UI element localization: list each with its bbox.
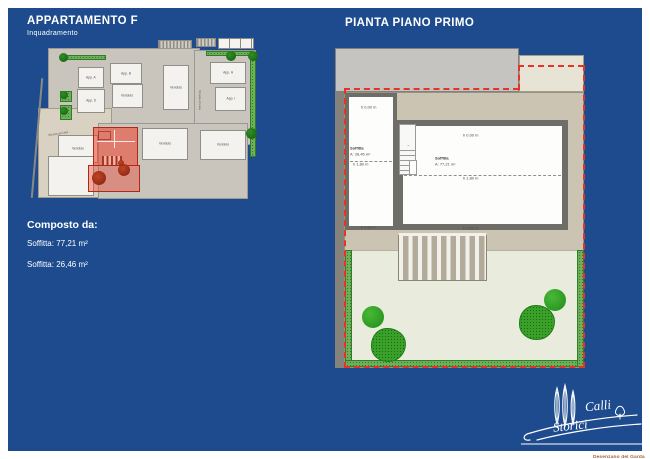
property-boundary — [583, 65, 585, 368]
apartment-d-label: App. D — [86, 99, 96, 102]
tree-icon — [544, 289, 566, 311]
sold-label: Venduto — [72, 147, 84, 150]
composto-heading: Composto da: — [27, 219, 98, 231]
tree-icon — [226, 51, 236, 61]
site-plan: App. A App. B Venduto App. D Venduto App… — [30, 38, 270, 201]
tree-icon — [248, 51, 258, 61]
large-room-area: A: 77,21 m² — [435, 154, 466, 172]
first-floor-plan: h 0,00 m Soffitta A: 26,46 m² h 1,80 m h… — [335, 48, 589, 372]
interior-wall — [114, 130, 115, 148]
tree-icon — [246, 128, 257, 139]
sold-label: Venduto — [170, 86, 182, 89]
tree-icon — [118, 160, 124, 166]
staircase — [399, 124, 416, 175]
sold-label: Venduto — [159, 142, 171, 145]
street-label-right: Strada privata — [192, 90, 210, 130]
height-label: h 0,00 m — [361, 97, 384, 115]
height-mid-label: h 1,80 m — [353, 163, 368, 167]
height-label: h 0,00 m — [463, 218, 486, 236]
siteplan-apartment-b: App. B — [110, 63, 142, 84]
height-mid-label: h 1,80 m — [463, 177, 478, 181]
room-area-line: Soffitta: 26,46 m² — [27, 260, 88, 269]
stair-winders — [400, 125, 415, 146]
adjacent-building-roof — [335, 48, 519, 92]
height-zero-label: h 0,00 m — [463, 227, 478, 231]
tree-icon — [60, 107, 68, 115]
height-zero-label: h 0,00 m — [463, 134, 478, 138]
bush-icon — [371, 328, 406, 362]
siteplan-apartment-a: App. A — [78, 67, 104, 88]
interior-wall — [97, 141, 135, 142]
stair-landing — [409, 160, 417, 175]
siteplan-apartment-d: App. D — [77, 89, 105, 113]
sold-label: Venduto — [121, 94, 133, 97]
siteplan-apartment-i: App. I — [215, 87, 246, 111]
siteplan-sold-unit: Venduto — [142, 128, 188, 160]
siteplan-sold-unit: Venduto — [200, 130, 246, 160]
height-zero-label: h 0,00 m — [361, 106, 376, 110]
neighbour-wall — [335, 92, 344, 368]
height-zero-label: h 0,00 m — [361, 226, 376, 230]
bush-icon — [519, 305, 555, 340]
logo-tagline-wrap: Desenzano del Garda — [580, 446, 645, 459]
garden-hedge-left — [345, 250, 352, 367]
logo-tagline: Desenzano del Garda — [593, 455, 645, 459]
height-label: h 1,80 m — [463, 168, 486, 186]
height-label: h 1,80 m — [353, 154, 376, 172]
street-label: Strada privata — [198, 90, 201, 110]
siteplan-sold-unit: Venduto — [163, 65, 189, 110]
property-boundary — [344, 366, 585, 368]
apartment-a-label: App. A — [86, 76, 96, 79]
brochure-page: APPARTAMENTO F Inquadramento App. A App.… — [0, 0, 650, 459]
pergola-steps — [398, 233, 487, 281]
room-area-label: A: 77,21 m² — [435, 163, 455, 167]
property-boundary — [344, 88, 346, 368]
siteplan-stairs-hatch — [196, 38, 216, 47]
siteplan-outbuildings — [218, 38, 254, 49]
hedge-strip — [250, 56, 256, 157]
interior-room — [98, 131, 111, 140]
tree-icon — [362, 306, 384, 328]
property-boundary — [518, 65, 584, 67]
tree-icon — [60, 91, 68, 99]
street-label: Strada privata — [48, 131, 68, 137]
tree-icon — [59, 53, 68, 62]
siteplan-sold-unit: Venduto — [112, 84, 143, 108]
sold-label: Venduto — [217, 143, 229, 146]
apartment-b-label: App. B — [121, 72, 131, 75]
page-title: APPARTAMENTO F — [27, 15, 138, 27]
logo-word-calli: Calli — [584, 397, 612, 416]
siteplan-apartment-h: App. H — [210, 62, 246, 84]
plan-title: PIANTA PIANO PRIMO — [345, 17, 474, 29]
tree-icon — [92, 171, 106, 185]
property-boundary — [518, 65, 520, 90]
height-label: h 0,00 m — [361, 217, 384, 235]
blue-canvas: APPARTAMENTO F Inquadramento App. A App.… — [8, 8, 642, 451]
calli-storici-logo: Calli Storici Desenzano del Garda — [513, 380, 650, 454]
apartment-i-label: App. I — [226, 97, 235, 100]
property-boundary — [344, 88, 519, 90]
apartment-h-label: App. H — [223, 71, 233, 74]
adjacent-light-roof — [519, 55, 584, 92]
height-label: h 0,00 m — [463, 125, 486, 143]
room-area-line: Soffitta: 77,21 m² — [27, 239, 88, 248]
inquadramento-subtitle: Inquadramento — [27, 30, 78, 37]
